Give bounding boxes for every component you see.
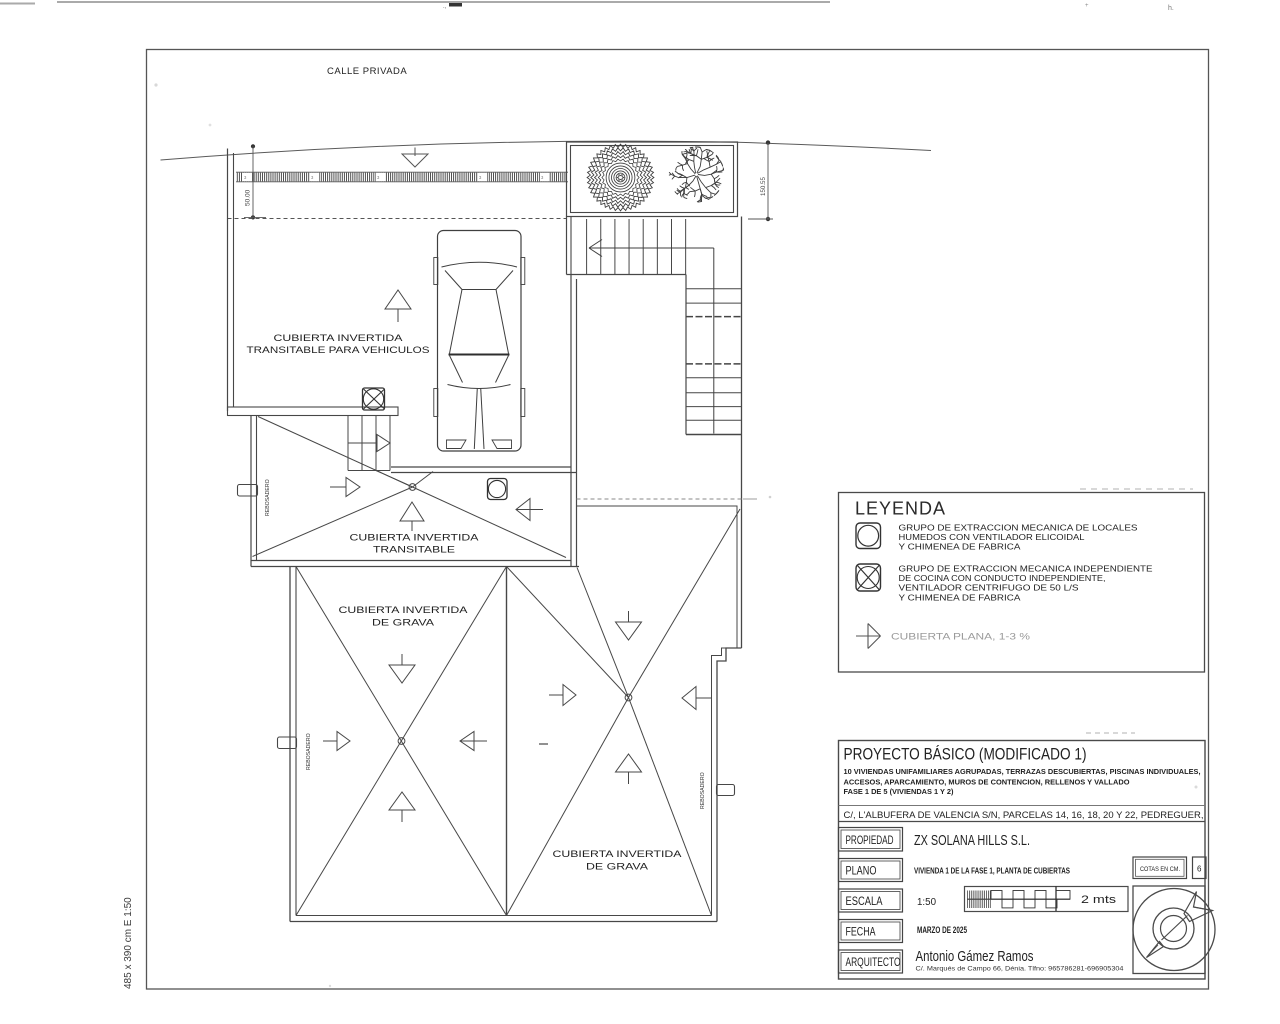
svg-text:REBOSADERO: REBOSADERO (306, 733, 312, 770)
svg-text:C/. Marqués de Campo 66, Dénia: C/. Marqués de Campo 66, Dénia. Tlfno: 9… (916, 966, 1124, 973)
svg-text:10 VIVIENDAS UNIFAMILIARES AGR: 10 VIVIENDAS UNIFAMILIARES AGRUPADAS, TE… (844, 767, 1201, 776)
svg-text:GRUPO DE EXTRACCION MECANICA I: GRUPO DE EXTRACCION MECANICA INDEPENDIEN… (899, 564, 1154, 574)
svg-text:CUBIERTA INVERTIDA: CUBIERTA INVERTIDA (339, 605, 469, 615)
svg-text:HUMEDOS CON VENTILADOR ELICOID: HUMEDOS CON VENTILADOR ELICOIDAL (899, 532, 1085, 542)
svg-text:DE GRAVA: DE GRAVA (586, 862, 649, 872)
svg-text:2 mts: 2 mts (1081, 894, 1117, 906)
svg-text:VENTILADOR CENTRIFUGO DE 50 L/: VENTILADOR CENTRIFUGO DE 50 L/S (899, 583, 1080, 593)
svg-text:FECHA: FECHA (846, 927, 876, 939)
svg-text:GRUPO DE EXTRACCION MECANICA D: GRUPO DE EXTRACCION MECANICA DE LOCALES (899, 523, 1139, 533)
svg-text:CUBIERTA INVERTIDA: CUBIERTA INVERTIDA (350, 533, 480, 543)
svg-text:TRANSITABLE: TRANSITABLE (373, 545, 455, 555)
svg-text:1:50: 1:50 (917, 897, 936, 908)
svg-text:DE GRAVA: DE GRAVA (372, 618, 435, 628)
svg-text:Antonio Gámez Ramos: Antonio Gámez Ramos (916, 948, 1034, 965)
svg-text:150.55: 150.55 (760, 177, 767, 196)
svg-text:REBOSADERO: REBOSADERO (265, 479, 271, 516)
svg-text:ESCALA: ESCALA (846, 896, 883, 908)
svg-text:CUBIERTA INVERTIDA: CUBIERTA INVERTIDA (553, 849, 683, 859)
svg-text:PLANO: PLANO (846, 866, 877, 878)
svg-text:Y CHIMENEA DE FABRICA: Y CHIMENEA DE FABRICA (899, 542, 1022, 552)
svg-text:CALLE PRIVADA: CALLE PRIVADA (327, 66, 407, 77)
svg-text:h.: h. (1168, 5, 1174, 12)
svg-text:DE COCINA CON CONDUCTO INDEPEN: DE COCINA CON CONDUCTO INDEPENDIENTE, (899, 573, 1106, 583)
svg-text:50.00: 50.00 (245, 189, 252, 206)
svg-text:CUBIERTA INVERTIDA: CUBIERTA INVERTIDA (274, 333, 404, 343)
svg-text:FASE 1 DE 5 (VIVIENDAS 1 Y 2): FASE 1 DE 5 (VIVIENDAS 1 Y 2) (844, 787, 954, 796)
svg-text:MARZO DE 2025: MARZO DE 2025 (917, 925, 967, 935)
svg-text:CUBIERTA PLANA, 1-3 %: CUBIERTA PLANA, 1-3 % (891, 632, 1030, 642)
svg-text:C/, L'ALBUFERA DE VALENCIA S/N: C/, L'ALBUFERA DE VALENCIA S/N, PARCELAS… (844, 810, 1204, 820)
svg-text:ZX SOLANA HILLS S.L.: ZX SOLANA HILLS S.L. (914, 833, 1030, 849)
svg-text:PROYECTO BÁSICO (MODIFICADO 1): PROYECTO BÁSICO (MODIFICADO 1) (844, 745, 1087, 764)
svg-text:485 x 390 cm E 1:50: 485 x 390 cm E 1:50 (123, 897, 134, 989)
svg-text:COTAS EN CM.: COTAS EN CM. (1140, 867, 1180, 873)
svg-text:LEYENDA: LEYENDA (855, 499, 946, 519)
svg-text:REBOSADERO: REBOSADERO (700, 772, 706, 809)
svg-text:ACCESOS, APARCAMIENTO, MUROS D: ACCESOS, APARCAMIENTO, MUROS DE CONTENCI… (844, 778, 1130, 787)
svg-text:+: + (1085, 3, 1089, 9)
svg-text:Y CHIMENEA DE FABRICA: Y CHIMENEA DE FABRICA (899, 593, 1022, 603)
svg-text:PROPIEDAD: PROPIEDAD (846, 835, 894, 847)
svg-text:.,: ., (443, 4, 447, 10)
svg-text:6: 6 (1197, 865, 1202, 874)
svg-text:ARQUITECTO: ARQUITECTO (846, 957, 901, 969)
svg-text:TRANSITABLE PARA VEHICULOS: TRANSITABLE PARA VEHICULOS (247, 345, 430, 355)
svg-text:VIVIENDA 1 DE LA FASE 1, PLAN: VIVIENDA 1 DE LA FASE 1, PLANTA DE CUBIE… (914, 867, 1070, 876)
